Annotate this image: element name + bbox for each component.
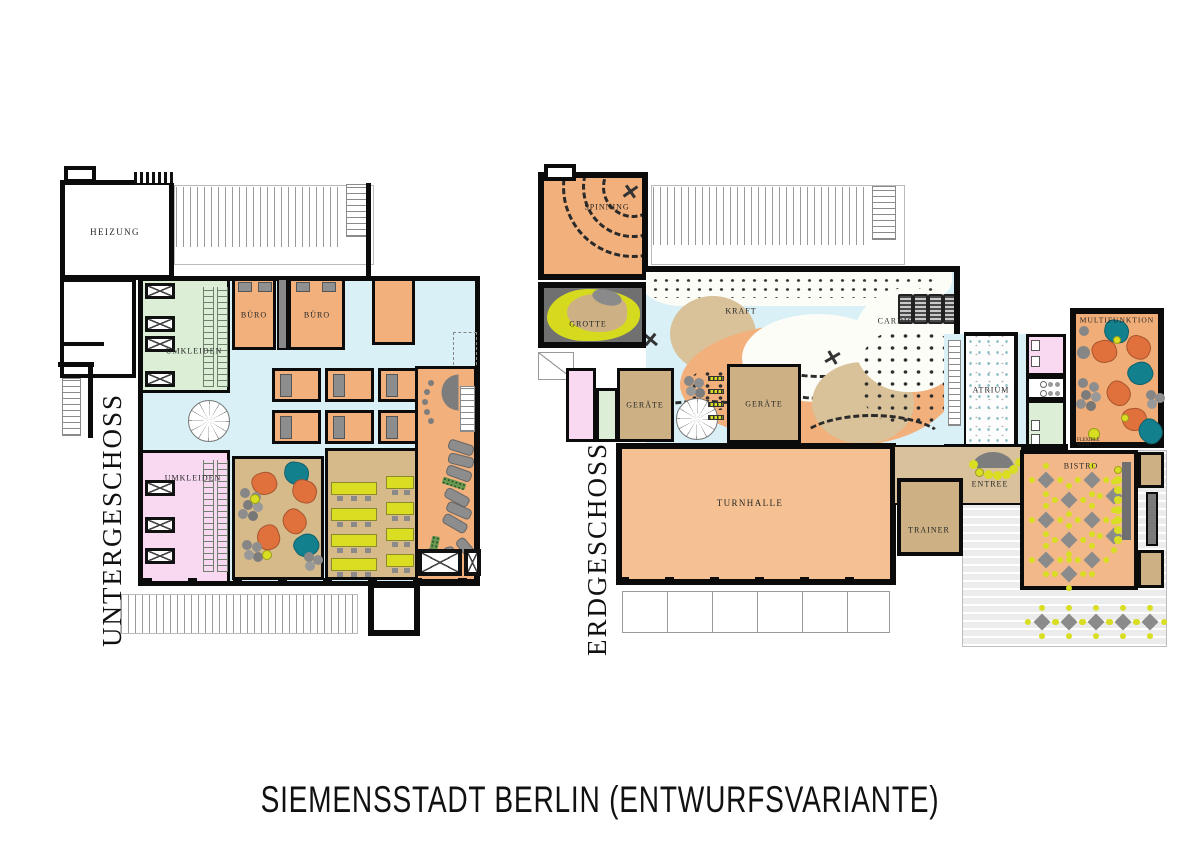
spinning-notch bbox=[544, 164, 576, 181]
bistro-side-room bbox=[1138, 452, 1164, 488]
hatch-area-top-eg bbox=[653, 187, 869, 245]
room-trainer bbox=[897, 478, 963, 556]
toilet-icon bbox=[1031, 340, 1040, 351]
cable-machine-icon bbox=[646, 333, 658, 346]
room-turnhalle bbox=[616, 443, 896, 585]
sink-icon bbox=[1040, 390, 1047, 397]
room-label-geraete-1: GERÄTE bbox=[626, 401, 664, 410]
reception-stools-icon bbox=[975, 468, 984, 477]
reception-stools-icon bbox=[428, 380, 434, 386]
room-wc-west-green bbox=[596, 388, 618, 442]
room-label-umkleiden-1: UMKLEIDEN bbox=[166, 347, 223, 356]
pouf-cluster-icon bbox=[1078, 378, 1088, 388]
stool-icon bbox=[1121, 414, 1129, 422]
massage-bed-icon bbox=[280, 416, 292, 439]
pouf-icon bbox=[1079, 326, 1089, 336]
hatch-area-bottom bbox=[120, 594, 358, 634]
exterior-stair-west bbox=[62, 378, 81, 436]
massage-bed-icon bbox=[386, 374, 398, 397]
sheet-title: SIEMENSSTADT BERLIN (ENTWURFSVARIANTE) bbox=[144, 779, 1056, 821]
massage-bed-icon bbox=[333, 374, 345, 397]
dumbbell-rack-icon bbox=[708, 376, 724, 381]
room-label-multifunktion: MULTIFUNKTION bbox=[1080, 316, 1154, 325]
hatch-area-top bbox=[176, 187, 344, 247]
skylight-xbox bbox=[464, 549, 481, 576]
toilet-icon bbox=[1031, 356, 1040, 367]
desk-icon bbox=[238, 282, 252, 292]
shaft-xbox bbox=[145, 517, 175, 533]
room-label-bistro: BISTRO bbox=[1064, 462, 1098, 471]
treadmill-icon bbox=[913, 294, 928, 324]
room-label-geraete-2: GERÄTE bbox=[745, 400, 783, 409]
lockers-green-a bbox=[203, 287, 214, 387]
shaft-xbox bbox=[145, 316, 175, 332]
seminar-table bbox=[386, 476, 414, 489]
lockers-green-b bbox=[217, 287, 228, 387]
pouf-cluster-icon bbox=[1146, 390, 1156, 400]
heizung-notch bbox=[64, 166, 96, 183]
outer-wall-b bbox=[88, 362, 93, 438]
sink-icon bbox=[1040, 381, 1047, 388]
seminar-table bbox=[331, 534, 377, 547]
atrium-corridor-east bbox=[1018, 334, 1026, 446]
dashed-outline bbox=[453, 332, 477, 370]
room-label-spinning: SPINNING bbox=[584, 203, 629, 212]
pouf-cluster-icon bbox=[304, 552, 314, 562]
bar-counter bbox=[1122, 462, 1131, 540]
massage-bed-icon bbox=[333, 416, 345, 439]
room-spinning bbox=[538, 172, 648, 280]
skylight-xbox bbox=[418, 549, 462, 576]
lightwell bbox=[368, 582, 420, 636]
treadmill-icon bbox=[943, 294, 958, 324]
seminar-table bbox=[386, 502, 414, 515]
buero-divider bbox=[277, 278, 288, 350]
room-label-grotte: GROTTE bbox=[569, 320, 607, 329]
floor-label-untergeschoss: UNTERGESCHOSS bbox=[97, 437, 128, 647]
floor-label-erdgeschoss: ERDGESCHOSS bbox=[582, 486, 613, 656]
stool-icon bbox=[262, 550, 272, 560]
dumbbell-rack-icon bbox=[708, 389, 724, 394]
pouf-cluster-icon bbox=[242, 540, 252, 550]
shaft-xbox bbox=[145, 548, 175, 564]
shaft-xbox bbox=[145, 371, 175, 387]
room-unlabeled-orange bbox=[372, 278, 415, 345]
room-label-buero-2: BÜRO bbox=[304, 311, 330, 320]
desk-icon bbox=[296, 282, 310, 292]
wall-court-east bbox=[366, 183, 371, 279]
floor-plan-sheet: HEIZUNG BÜRO BÜRO UMKLEIDEN UMKLEIDEN UN… bbox=[0, 0, 1200, 848]
window-bar bbox=[1146, 492, 1158, 546]
walkway-strip bbox=[622, 591, 890, 633]
seminar-table bbox=[386, 528, 414, 541]
desk-icon bbox=[258, 282, 272, 292]
pouf-cluster-icon bbox=[684, 376, 694, 386]
spiral-stair-ug bbox=[188, 400, 230, 442]
bar-stools-icon bbox=[1114, 466, 1122, 474]
stair-ug-east bbox=[460, 386, 475, 432]
room-label-umkleiden-2: UMKLEIDEN bbox=[165, 474, 222, 483]
wall-vent-strip bbox=[134, 172, 174, 183]
massage-bed-icon bbox=[386, 416, 398, 439]
seminar-table bbox=[331, 558, 377, 571]
room-label-kraft: KRAFT bbox=[725, 307, 756, 316]
stair-top-eg bbox=[872, 186, 896, 240]
toilet-icon bbox=[1031, 420, 1040, 431]
room-label-buero-1: BÜRO bbox=[241, 311, 267, 320]
wall-pilasters-ug bbox=[143, 578, 480, 586]
dumbbell-rack-icon bbox=[708, 402, 724, 407]
seminar-table bbox=[331, 508, 377, 521]
room-label-turnhalle: TURNHALLE bbox=[717, 498, 784, 508]
room-label-entree: ENTREE bbox=[972, 480, 1009, 489]
seminar-table bbox=[386, 554, 414, 567]
wc-sinks bbox=[1026, 376, 1066, 400]
dumbbell-rack-icon bbox=[708, 415, 724, 420]
pouf-cluster-icon bbox=[240, 488, 250, 498]
pouf-icon bbox=[1077, 346, 1090, 359]
room-label-atrium: ATRIUM bbox=[973, 386, 1010, 395]
massage-bed-icon bbox=[280, 374, 292, 397]
room-label-cardio: CARDIO bbox=[878, 317, 915, 326]
annex-divider-wall bbox=[64, 342, 104, 346]
stool-icon bbox=[1113, 336, 1121, 344]
treadmill-icon bbox=[928, 294, 943, 324]
stair-top bbox=[346, 184, 367, 237]
seminar-table bbox=[331, 482, 377, 495]
room-label-trainer: TRAINER bbox=[908, 526, 950, 535]
desk-icon bbox=[322, 282, 336, 292]
room-label-flexible-wand: FLEXIBLE WAND bbox=[1077, 438, 1105, 449]
stair-atrium bbox=[948, 340, 961, 426]
bistro-side-room bbox=[1138, 550, 1164, 588]
wall-pilasters-eg bbox=[620, 577, 892, 585]
stool-icon bbox=[250, 494, 260, 504]
shaft-xbox bbox=[145, 283, 175, 299]
room-label-heizung: HEIZUNG bbox=[90, 227, 140, 237]
room-wc-west-pink bbox=[566, 368, 596, 442]
